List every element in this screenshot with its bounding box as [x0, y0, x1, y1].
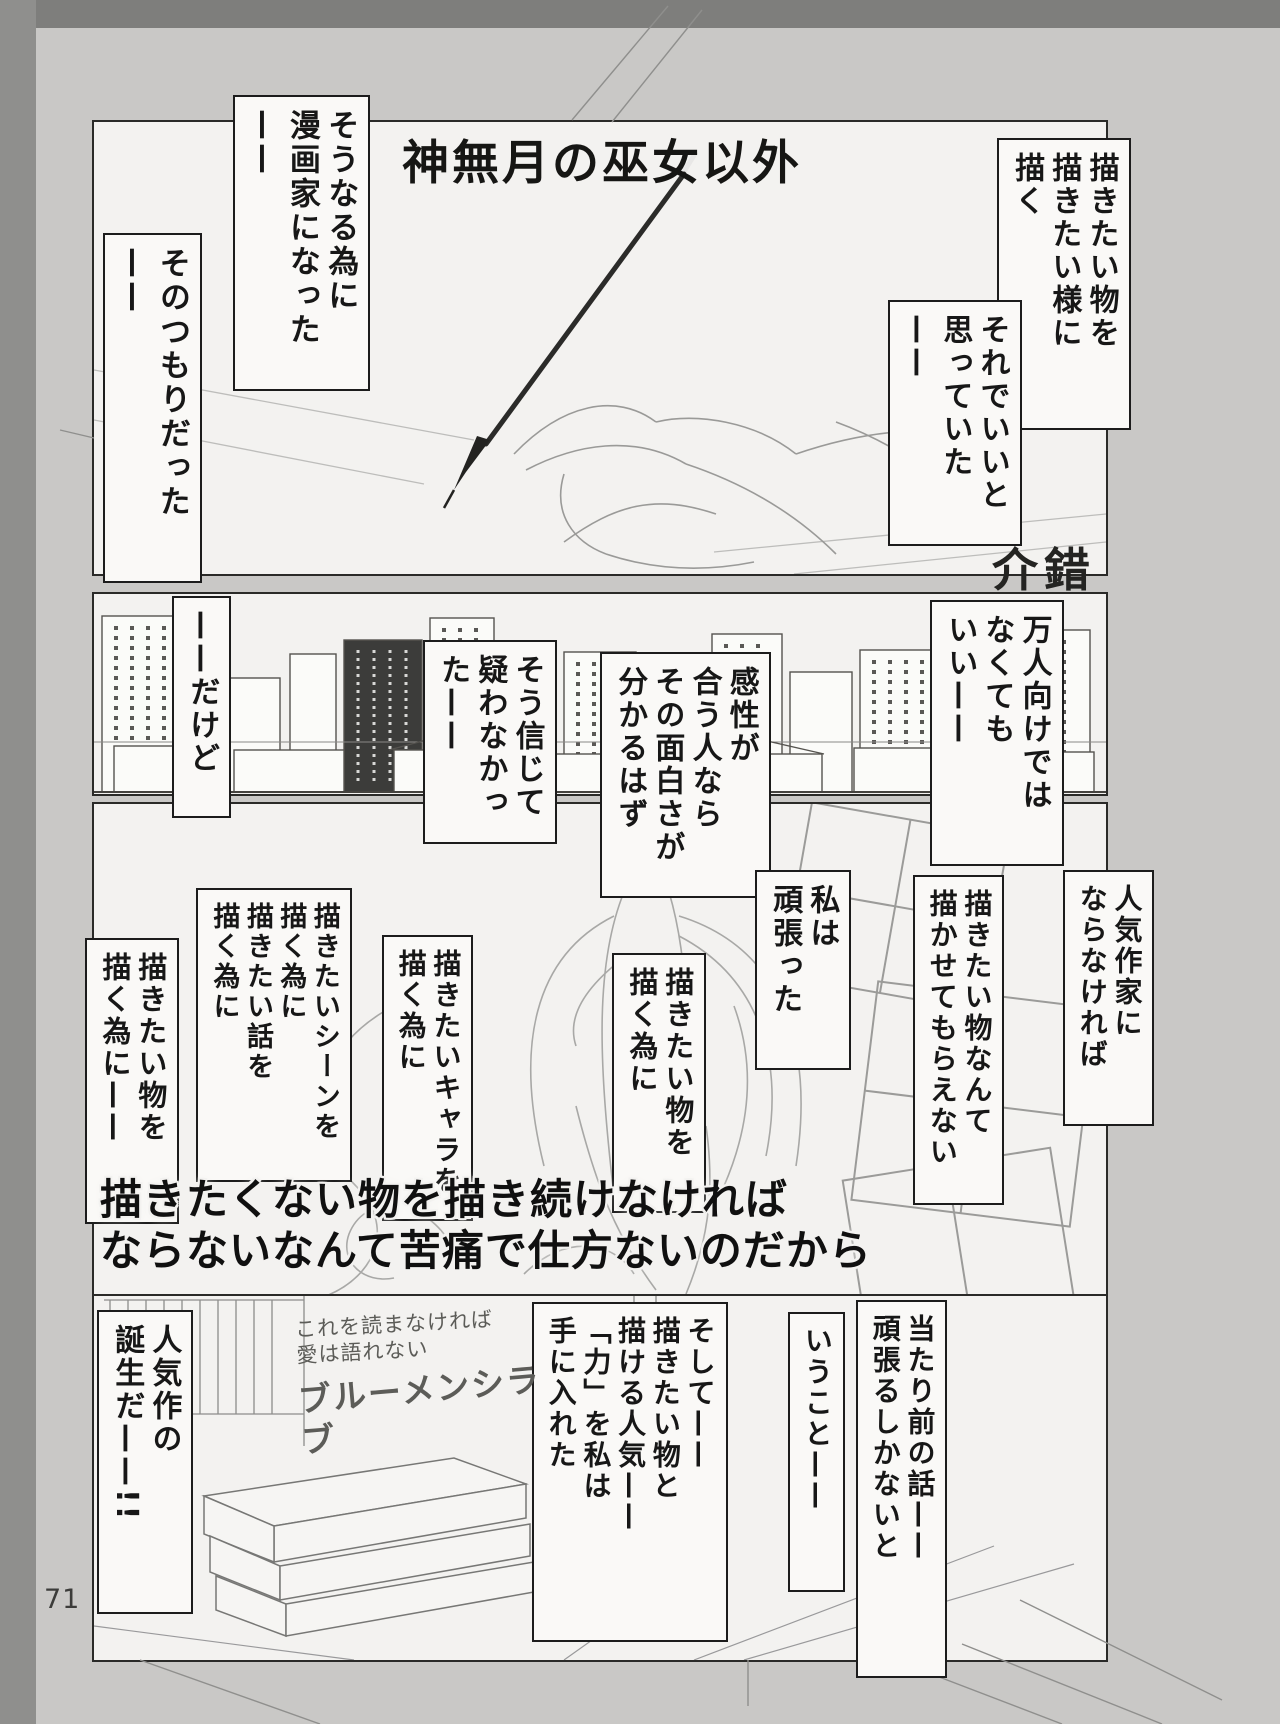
handwritten-note: これを読まなければ 愛は語れない ブルーメンシラブ — [294, 1304, 551, 1458]
caption-box-thought-that-was-fine: それでいいと 思っていた—— — [888, 300, 1022, 546]
emphasis-text: 描きたくない物を描き続けなければ ならないなんて苦痛で仕方ないのだから — [100, 1174, 1040, 1276]
caption-box-not-allowed-to-draw: 描きたい物なんて 描かせてもらえない — [913, 875, 1004, 1205]
caption-box-hit-work-is-born: 人気作の 誕生だ——!! — [97, 1310, 193, 1614]
caption-box-must-become-popular: 人気作家に ならなければ — [1063, 870, 1154, 1126]
handwritten-note-title: ブルーメンシラブ — [296, 1358, 552, 1462]
scan-edge-left — [0, 0, 36, 1724]
page-number: 71 — [44, 1584, 80, 1615]
scanned-page-background: 神無月の巫女以外 そうなる為に 漫画家になった —— そのつもりだった —— 描… — [0, 0, 1280, 1724]
artist-signature: 介錯 — [992, 534, 1096, 600]
caption-box-obvious-answer: 当たり前の話—— 頑張るしかないと — [856, 1300, 947, 1678]
caption-box-obtained-the-power: そして—— 描きたい物と 描ける人気—— 「力」を私は 手に入れた — [532, 1302, 728, 1642]
caption-box-scenes-and-stories: 描きたいシーンを 描く為に 描きたい話を 描く為に — [196, 888, 352, 1182]
page-title: 神無月の巫女以外 — [402, 124, 802, 193]
caption-box-not-for-everyone: 万人向けでは なくても いい—— — [930, 600, 1064, 866]
caption-box-that-was-the-plan: そのつもりだった —— — [103, 233, 202, 583]
caption-box-i-worked-hard: 私は 頑張った — [755, 870, 851, 1070]
caption-box-but: ——だけど — [172, 596, 231, 818]
caption-box-never-doubted: そう信じて 疑わなかっ た—— — [423, 640, 557, 844]
scan-edge-top — [0, 0, 1280, 30]
caption-box-thats-all: いうこと—— — [788, 1312, 845, 1592]
caption-box-became-mangaka: そうなる為に 漫画家になった —— — [233, 95, 370, 391]
caption-box-people-who-get-it: 感性が 合う人なら その面白さが 分かるはず — [600, 652, 771, 898]
